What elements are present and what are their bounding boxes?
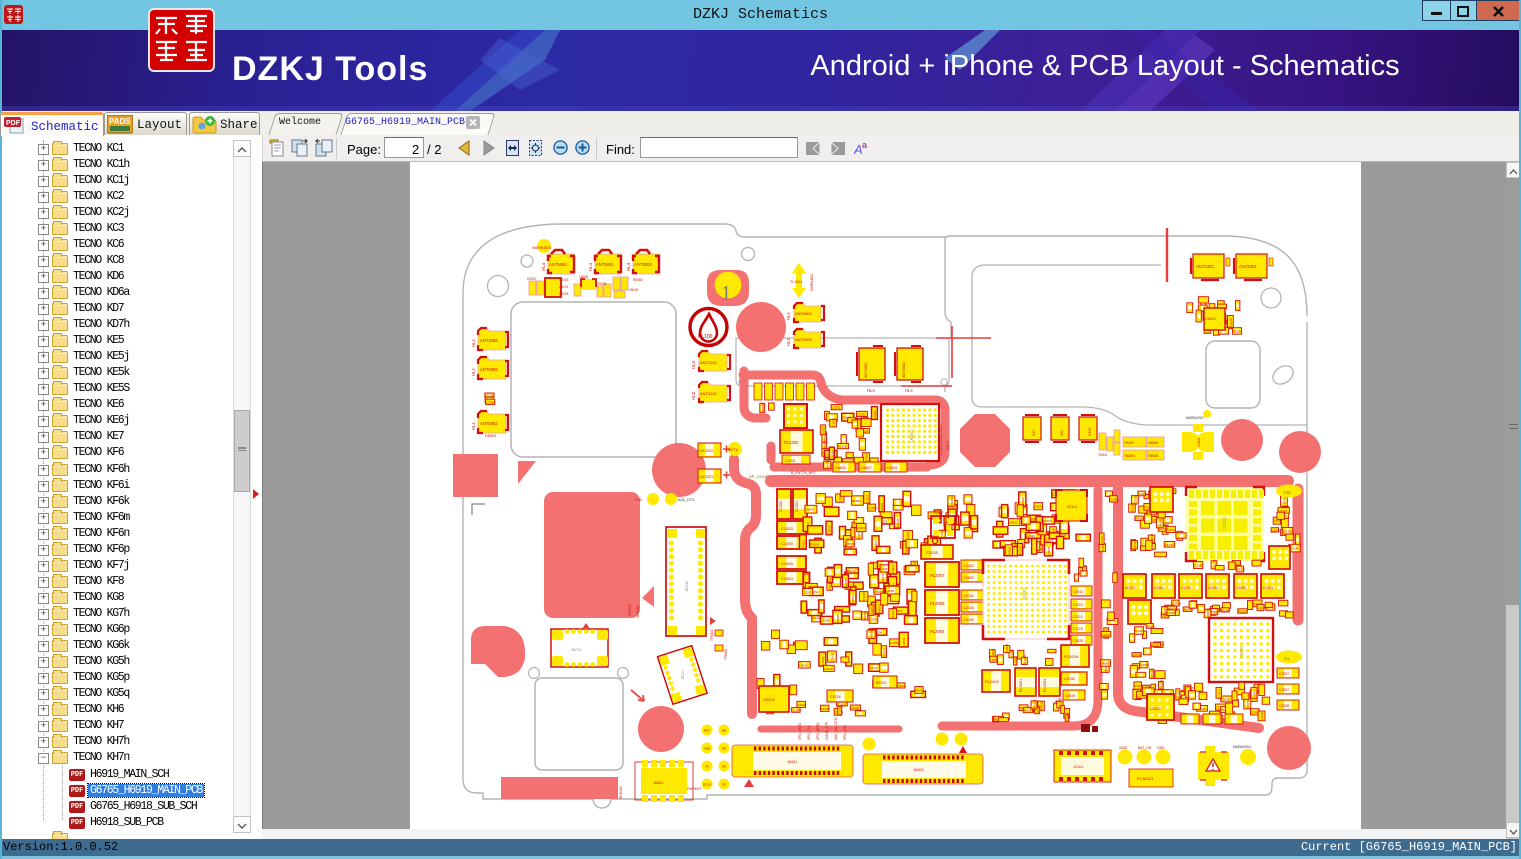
- svg-text:ANT3402: ANT3402: [1196, 264, 1214, 269]
- svg-text:C2048: C2048: [940, 529, 944, 538]
- svg-text:R2204: R2204: [1131, 503, 1135, 512]
- svg-text:R3204: R3204: [882, 648, 886, 657]
- svg-text:C2048: C2048: [1194, 564, 1203, 568]
- svg-text:R5003: R5003: [559, 278, 569, 282]
- svg-text:ANT6601: ANT6601: [864, 362, 868, 378]
- svg-text:C2034: C2034: [963, 594, 974, 598]
- svg-text:C6603: C6603: [1252, 689, 1256, 698]
- svg-text:C2201: C2201: [785, 459, 796, 463]
- svg-text:R2204: R2204: [870, 606, 874, 615]
- svg-text:PDF: PDF: [6, 120, 21, 127]
- svg-text:U3302: U3302: [1150, 707, 1161, 711]
- svg-text:SPI1_CLK: SPI1_CLK: [807, 724, 811, 740]
- svg-text:PL2004: PL2004: [930, 629, 945, 634]
- svg-text:C3007: C3007: [1279, 688, 1289, 692]
- svg-text:LED2201: LED2201: [699, 475, 713, 479]
- svg-text:R2204: R2204: [1019, 546, 1023, 555]
- svg-text:C1050: C1050: [781, 541, 794, 546]
- svg-text:C2119: C2119: [1073, 627, 1083, 631]
- svg-text:C3035: C3035: [1221, 697, 1230, 701]
- svg-text:U3101: U3101: [1222, 516, 1227, 530]
- svg-text:J6401: J6401: [787, 760, 797, 764]
- svg-text:GP: GP: [722, 747, 726, 751]
- svg-text:R6611: R6611: [1007, 546, 1011, 555]
- svg-text:C3035: C3035: [1023, 655, 1027, 664]
- svg-text:PADS: PADS: [109, 117, 131, 126]
- svg-text:R6611: R6611: [915, 688, 924, 692]
- svg-text:TL1001: TL1001: [790, 280, 802, 284]
- svg-text:HL4: HL4: [905, 388, 913, 393]
- svg-text:MARWJ002: MARWJ002: [1186, 416, 1204, 420]
- svg-text:U3001: U3001: [1022, 587, 1027, 600]
- svg-text:C2048: C2048: [896, 518, 900, 527]
- svg-text:B6005: B6005: [1158, 518, 1162, 527]
- svg-text:R2204: R2204: [1233, 329, 1242, 333]
- svg-text:C1052: C1052: [832, 406, 841, 410]
- svg-text:C2234: C2234: [830, 695, 841, 699]
- svg-text:PL3003: PL3003: [1043, 679, 1047, 692]
- svg-text:1: 1: [721, 281, 732, 305]
- svg-text:U3002: U3002: [1239, 645, 1244, 658]
- svg-text:L3295: L3295: [1283, 529, 1292, 533]
- svg-text:L3295: L3295: [821, 707, 830, 711]
- svg-text:PL2002: PL2002: [985, 679, 1000, 684]
- svg-text:C1052: C1052: [1246, 699, 1250, 708]
- svg-text:PL2009: PL2009: [930, 601, 945, 606]
- svg-text:C3035: C3035: [1206, 608, 1210, 617]
- svg-text:VBAT: VBAT: [1119, 746, 1128, 750]
- svg-text:PL100: PL100: [698, 334, 713, 340]
- svg-text:L6602: L6602: [865, 453, 869, 462]
- svg-text:SH6202: SH6202: [619, 786, 623, 799]
- svg-text:R6611: R6611: [801, 539, 805, 548]
- svg-text:C3035: C3035: [1047, 546, 1051, 555]
- svg-text:C3035: C3035: [926, 550, 939, 555]
- svg-text:C6607: C6607: [861, 466, 872, 470]
- svg-text:C2052: C2052: [963, 564, 974, 568]
- svg-text:C6603: C6603: [950, 497, 954, 506]
- svg-text:ANT6604: ANT6604: [795, 311, 813, 316]
- svg-text:C3035: C3035: [830, 653, 834, 662]
- svg-text:RST: RST: [704, 729, 710, 733]
- svg-text:C3035: C3035: [821, 656, 825, 665]
- svg-text:LED2202: LED2202: [699, 449, 713, 453]
- svg-text:SH6201: SH6201: [636, 605, 640, 618]
- svg-text:ANT6003: ANT6003: [795, 337, 813, 342]
- svg-text:ANT5082: ANT5082: [480, 421, 498, 426]
- svg-text:HL4: HL4: [786, 338, 791, 346]
- svg-text:U3285: U3285: [1236, 586, 1246, 590]
- svg-text:CHG: CHG: [1088, 428, 1092, 436]
- svg-text:R5004: R5004: [485, 434, 496, 438]
- svg-text:U3230: U3230: [1181, 586, 1191, 590]
- svg-text:B6005: B6005: [1149, 454, 1159, 458]
- svg-text:HLD: HLD: [691, 392, 696, 400]
- svg-text:R2204: R2204: [1043, 519, 1052, 523]
- svg-text:PL2008: PL2008: [1064, 654, 1079, 659]
- svg-text:C6603: C6603: [1034, 505, 1043, 509]
- svg-text:HLD: HLD: [691, 361, 696, 369]
- svg-text:B6005: B6005: [761, 403, 765, 412]
- svg-text:C6631: C6631: [887, 466, 898, 470]
- svg-text:R6007: R6007: [1125, 441, 1135, 445]
- svg-text:L6602: L6602: [1009, 521, 1018, 525]
- svg-text:C2048: C2048: [1065, 712, 1069, 721]
- svg-text:ANT3201: ANT3201: [700, 391, 718, 396]
- svg-text:B6005: B6005: [878, 604, 882, 613]
- svg-text:R2204: R2204: [1237, 568, 1246, 572]
- svg-text:C2110: C2110: [1176, 691, 1180, 700]
- svg-text:DOLD: DOLD: [703, 783, 712, 787]
- svg-text:U3203: U3203: [1263, 586, 1273, 590]
- svg-text:HL4: HL4: [471, 422, 476, 430]
- svg-text:C6603: C6603: [873, 410, 877, 419]
- svg-text:ANT6602: ANT6602: [902, 362, 906, 378]
- svg-text:C3097: C3097: [1279, 672, 1289, 676]
- svg-text:C2031: C2031: [1272, 528, 1281, 532]
- svg-text:C3035: C3035: [1133, 494, 1137, 503]
- svg-text:U3204: U3204: [1154, 586, 1164, 590]
- svg-text:L3295: L3295: [1014, 656, 1018, 665]
- svg-text:J6402: J6402: [653, 781, 663, 785]
- svg-text:U2202: U2202: [763, 697, 776, 702]
- svg-text:MARWJ001: MARWJ001: [810, 274, 814, 291]
- svg-text:C3035: C3035: [870, 617, 879, 621]
- svg-text:ANT3486: ANT3486: [480, 338, 498, 343]
- svg-text:HL4: HL4: [541, 262, 546, 271]
- svg-text:A1A_OTG: A1A_OTG: [678, 498, 695, 502]
- svg-text:L6602: L6602: [826, 460, 830, 469]
- svg-text:C1052: C1052: [1138, 492, 1147, 496]
- svg-text:C3035: C3035: [828, 525, 832, 534]
- svg-text:L6602: L6602: [1282, 497, 1286, 506]
- svg-text:B6006: B6006: [1149, 441, 1159, 445]
- svg-text:PJ B2121: PJ B2121: [1137, 777, 1153, 781]
- svg-text:L6602: L6602: [880, 503, 884, 512]
- svg-text:U6601: U6601: [909, 429, 914, 442]
- svg-text:L3295: L3295: [821, 619, 830, 623]
- svg-text:HL4: HL4: [471, 339, 476, 347]
- svg-text:L3295: L3295: [886, 589, 895, 593]
- svg-text:C2048: C2048: [1132, 653, 1141, 657]
- svg-text:C2110: C2110: [1102, 633, 1111, 637]
- svg-text:W3207: W3207: [1125, 586, 1136, 590]
- svg-text:C2036: C2036: [963, 606, 974, 610]
- svg-text:AP_GOOD: AP_GOOD: [749, 474, 769, 479]
- svg-text:L6602: L6602: [851, 706, 860, 710]
- svg-text:C1053: C1053: [781, 526, 794, 531]
- svg-text:L3402: L3402: [1205, 317, 1216, 321]
- svg-text:C2031: C2031: [803, 590, 812, 594]
- svg-text:WNF2: WNF2: [946, 441, 950, 450]
- svg-text:C2031: C2031: [1150, 669, 1154, 678]
- svg-text:L5015: L5015: [559, 285, 568, 289]
- svg-text:ANC_IN2_CCM: ANC_IN2_CCM: [834, 717, 838, 740]
- svg-text:HL4: HL4: [471, 368, 476, 376]
- svg-text:C2041: C2041: [1073, 590, 1083, 594]
- svg-text:C2031: C2031: [891, 564, 895, 573]
- svg-text:FM0: FM0: [635, 498, 642, 502]
- svg-text:C2036: C2036: [1064, 677, 1075, 681]
- svg-text:J6209: J6209: [684, 580, 689, 592]
- svg-text:HL4: HL4: [867, 388, 875, 393]
- svg-text:J2101: J2101: [1073, 765, 1083, 769]
- svg-text:C3008: C3008: [1279, 704, 1289, 708]
- svg-text:C1052: C1052: [838, 705, 842, 714]
- svg-text:GND: GND: [1157, 746, 1165, 750]
- svg-text:B6005: B6005: [870, 629, 874, 638]
- svg-text:C2110: C2110: [485, 394, 494, 398]
- svg-text:U3204: U3204: [1208, 586, 1218, 590]
- svg-text:J6403: J6403: [913, 768, 923, 772]
- svg-text:VBO: VBO: [704, 747, 711, 751]
- svg-text:NC+: NC+: [1032, 428, 1036, 436]
- svg-text:a: a: [862, 140, 868, 150]
- svg-text:R6611: R6611: [881, 573, 885, 582]
- svg-text:TP6201: TP6201: [710, 630, 714, 641]
- svg-text:L3402: L3402: [1197, 437, 1201, 447]
- svg-text:C2048: C2048: [486, 400, 495, 404]
- svg-text:C2031: C2031: [1167, 528, 1176, 532]
- svg-text:C6608: C6608: [835, 466, 846, 470]
- svg-text:HL4: HL4: [786, 312, 791, 320]
- svg-text:L5018: L5018: [629, 288, 638, 292]
- svg-text:C2048: C2048: [797, 703, 806, 707]
- svg-text:ANT5086: ANT5086: [480, 367, 498, 372]
- svg-text:C1052: C1052: [851, 594, 855, 603]
- svg-text:ANT3401: ANT3401: [1239, 264, 1257, 269]
- svg-text:ATI: ATI: [705, 765, 710, 769]
- svg-text:L6602: L6602: [805, 508, 814, 512]
- svg-text:NC-: NC-: [1060, 429, 1064, 436]
- svg-text:R3204: R3204: [1147, 624, 1156, 628]
- svg-text:C2650: C2650: [963, 576, 974, 580]
- svg-text:MARWJ003: MARWJ003: [532, 246, 551, 250]
- svg-text:A10: A10: [1283, 490, 1291, 495]
- svg-text:CN6608R6612C6629: CN6608R6612C6629: [939, 424, 943, 455]
- svg-text:C3025: C3025: [1073, 639, 1083, 643]
- svg-text:HL4: HL4: [588, 262, 593, 271]
- svg-text:C3035: C3035: [1140, 663, 1149, 667]
- svg-text:A1: A1: [1284, 656, 1290, 661]
- svg-text:C1052: C1052: [1110, 497, 1119, 501]
- svg-text:C1052: C1052: [779, 501, 783, 512]
- svg-text:C3035: C3035: [844, 578, 848, 587]
- svg-text:L6602: L6602: [799, 663, 808, 667]
- svg-text:K2101: K2101: [1067, 505, 1077, 509]
- svg-text:HL4: HL4: [626, 262, 631, 271]
- svg-text:CM116_CTP: CM116_CTP: [825, 722, 829, 740]
- svg-text:J6211: J6211: [681, 670, 685, 680]
- svg-text:SPI2_MISO: SPI2_MISO: [816, 723, 820, 740]
- svg-text:J6212: J6212: [571, 648, 581, 652]
- svg-text:SPI1_CS0: SPI1_CS0: [843, 725, 847, 740]
- svg-text:SPI1_MOSI: SPI1_MOSI: [798, 723, 802, 740]
- svg-text:R3204: R3204: [1159, 679, 1163, 688]
- svg-text:B6005: B6005: [863, 611, 867, 620]
- svg-text:ANT5084: ANT5084: [549, 262, 567, 267]
- svg-text:R2204: R2204: [838, 445, 847, 449]
- svg-text:ANT5003: ANT5003: [634, 262, 652, 267]
- svg-text:C6603: C6603: [857, 526, 866, 530]
- svg-text:R6611: R6611: [1210, 610, 1219, 614]
- svg-text:B6005: B6005: [1101, 662, 1110, 666]
- svg-text:C5025: C5025: [559, 292, 569, 296]
- svg-text:L6602: L6602: [822, 426, 826, 435]
- svg-text:C1052: C1052: [890, 641, 899, 645]
- svg-text:L3295: L3295: [1167, 611, 1176, 615]
- svg-text:C3112: C3112: [1073, 615, 1083, 619]
- svg-text:L5008: L5008: [579, 275, 588, 279]
- svg-text:B2201: B2201: [876, 681, 886, 685]
- svg-text:C2031: C2031: [1100, 535, 1104, 544]
- svg-text:R2204: R2204: [1238, 609, 1247, 613]
- svg-text:B6005: B6005: [852, 499, 861, 503]
- svg-text:L3295: L3295: [1010, 649, 1014, 658]
- svg-text:PL2202: PL2202: [784, 440, 799, 445]
- svg-text:C5306: C5306: [597, 282, 607, 286]
- svg-text:R6003: R6003: [1125, 454, 1135, 458]
- svg-text:M0: M0: [722, 729, 726, 733]
- svg-text:C3035: C3035: [862, 592, 866, 601]
- svg-text:R3204: R3204: [891, 609, 895, 618]
- svg-text:Y6004: Y6004: [1098, 453, 1107, 457]
- svg-text:C5012: C5012: [527, 277, 537, 281]
- svg-text:C2031: C2031: [832, 417, 836, 426]
- svg-text:C6603: C6603: [846, 542, 855, 546]
- svg-text:C2045: C2045: [963, 618, 974, 622]
- svg-text:L3295: L3295: [1260, 712, 1264, 721]
- svg-text:PWRKEY: PWRKEY: [687, 787, 702, 791]
- svg-text:R6611: R6611: [1133, 540, 1137, 549]
- svg-text:L3295: L3295: [865, 494, 869, 503]
- svg-text:C1052: C1052: [868, 506, 877, 510]
- svg-text:MARWJ004: MARWJ004: [1233, 745, 1251, 749]
- svg-text:B_ENT29_NFC: B_ENT29_NFC: [791, 471, 816, 475]
- svg-text:NF: NF: [722, 765, 726, 769]
- svg-text:C2031: C2031: [1005, 643, 1009, 652]
- svg-text:C1065: C1065: [781, 561, 794, 566]
- svg-text:R2204: R2204: [1221, 608, 1230, 612]
- svg-text:C2110: C2110: [1073, 603, 1083, 607]
- svg-text:ANT2202: ANT2202: [700, 360, 718, 365]
- svg-text:L3295: L3295: [830, 450, 834, 459]
- svg-text:SH6203: SH6203: [628, 604, 632, 616]
- svg-text:C2110: C2110: [824, 667, 833, 671]
- svg-text:PL3001: PL3001: [1019, 679, 1023, 692]
- svg-text:R3204: R3204: [1032, 699, 1036, 708]
- svg-text:C2048: C2048: [792, 708, 801, 712]
- svg-text:C2031: C2031: [1135, 629, 1144, 633]
- svg-text:R3204: R3204: [847, 569, 856, 573]
- svg-text:TP6202: TP6202: [724, 649, 728, 660]
- svg-text:B6005: B6005: [836, 614, 840, 623]
- svg-text:C2048: C2048: [1026, 534, 1035, 538]
- svg-text:R3204: R3204: [810, 542, 819, 546]
- svg-text:C2031: C2031: [857, 412, 866, 416]
- svg-text:R5083: R5083: [633, 278, 643, 282]
- svg-text:J2007: J2007: [934, 511, 944, 515]
- svg-text:C2019: C2019: [1065, 694, 1075, 698]
- svg-text:C3035: C3035: [1134, 684, 1143, 688]
- svg-text:CS: CS: [722, 783, 726, 787]
- svg-text:PL2007: PL2007: [930, 573, 945, 578]
- svg-text:C2110: C2110: [869, 666, 878, 670]
- svg-text:R6611: R6611: [1151, 643, 1160, 647]
- svg-text:C2110: C2110: [1229, 318, 1233, 327]
- svg-text:ANT5001: ANT5001: [596, 262, 614, 267]
- svg-text:C2031: C2031: [1217, 689, 1221, 698]
- svg-text:BAT_ON: BAT_ON: [1138, 746, 1152, 750]
- svg-text:C1064: C1064: [781, 576, 794, 581]
- svg-text:C1052: C1052: [1165, 543, 1174, 547]
- svg-text:C1051: C1051: [795, 501, 799, 512]
- svg-text:C2031: C2031: [902, 637, 906, 646]
